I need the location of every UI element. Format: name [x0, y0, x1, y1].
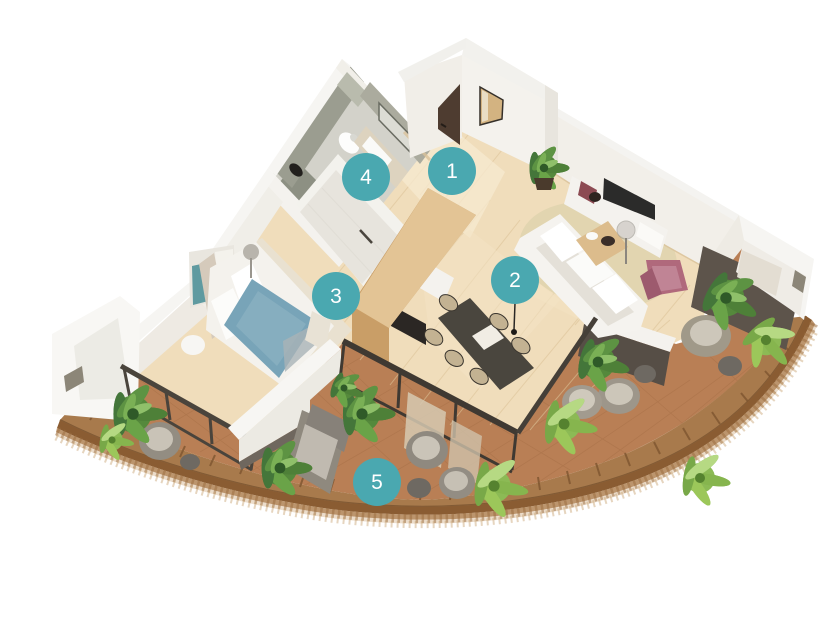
svg-text:4: 4 [360, 166, 372, 189]
svg-text:2: 2 [509, 269, 521, 292]
svg-text:1: 1 [446, 160, 458, 183]
svg-text:5: 5 [371, 471, 383, 494]
svg-text:3: 3 [330, 285, 342, 308]
